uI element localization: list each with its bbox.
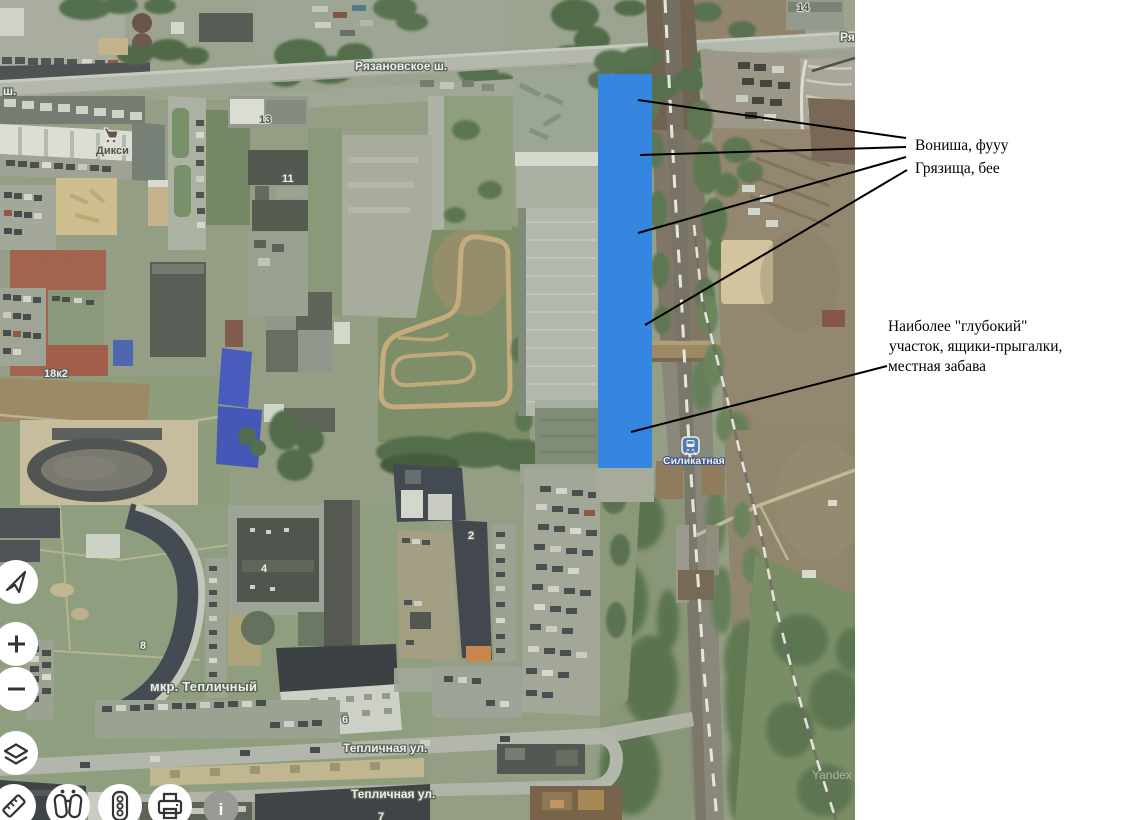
- svg-text:местная забава: местная забава: [888, 358, 986, 375]
- svg-text:Грязища, бее: Грязища, бее: [915, 160, 1000, 177]
- svg-text:i: i: [219, 800, 224, 819]
- svg-text:участок, ящики-прыгалки,: участок, ящики-прыгалки,: [889, 338, 1062, 355]
- svg-text:Наиболее "глубокий": Наиболее "глубокий": [888, 318, 1027, 335]
- svg-text:Вониша, фууу: Вониша, фууу: [915, 137, 1009, 154]
